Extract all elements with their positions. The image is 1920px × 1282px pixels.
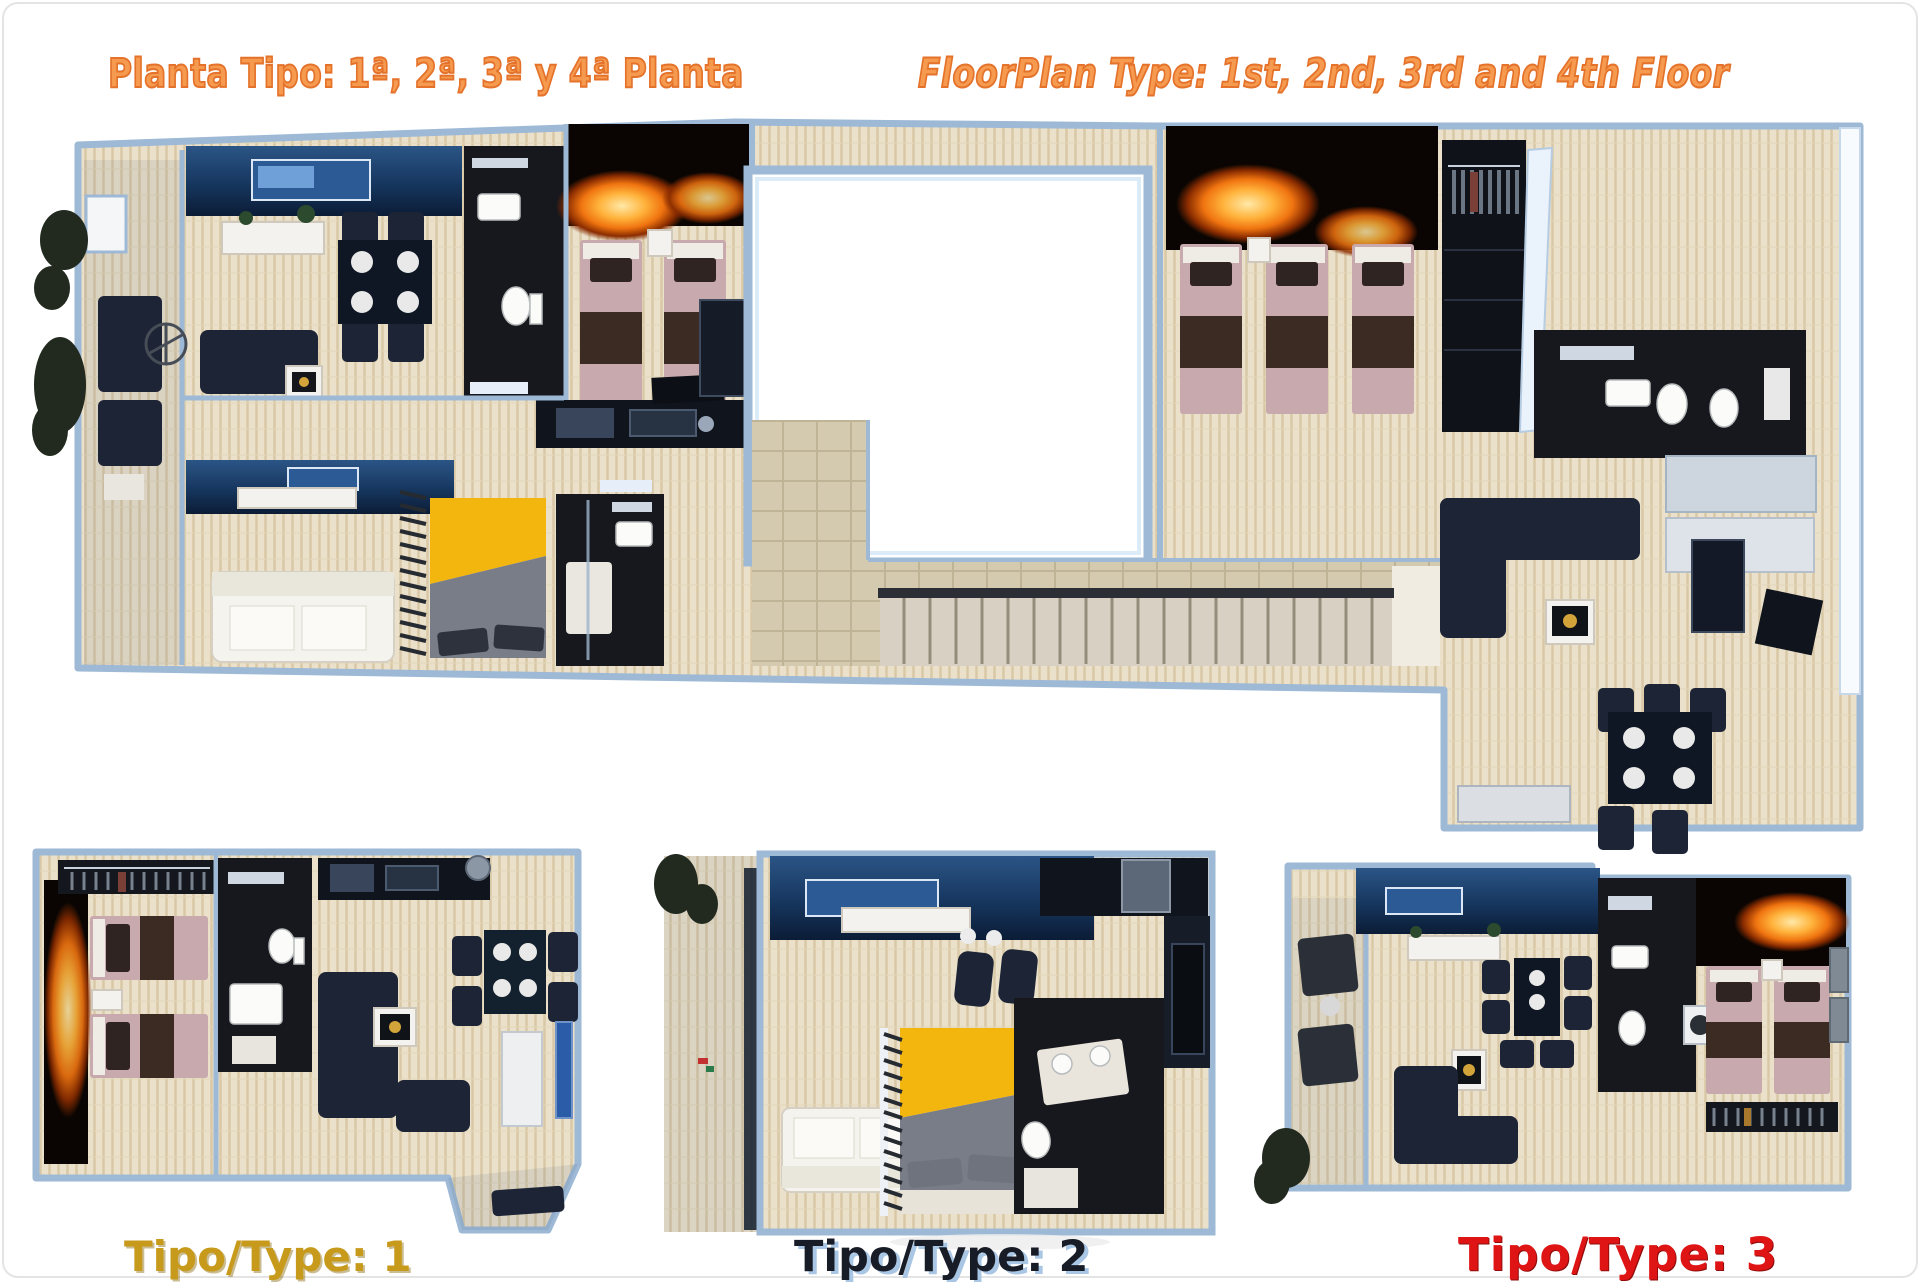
- bathroom-type-2: [1014, 998, 1164, 1214]
- fireplace-box-type-1: [374, 1008, 416, 1046]
- bathroom-type-1: [218, 858, 312, 1072]
- fridge: [700, 300, 750, 396]
- sink-right: [1606, 380, 1650, 406]
- door-gap-a: [470, 382, 528, 394]
- bathroom-a: [464, 146, 564, 396]
- media-board-type-2: [842, 908, 970, 932]
- sink-1: [230, 984, 282, 1024]
- tv-logo-type-3: [1386, 888, 1462, 914]
- stair-landing: [1392, 566, 1440, 666]
- wardrobe-type-3: [1706, 1102, 1838, 1132]
- bath-cabinet-type-2: [1024, 1168, 1078, 1208]
- nightstand: [648, 230, 672, 256]
- nightstand: [92, 990, 122, 1010]
- nightstand: [1248, 238, 1270, 262]
- tree-type-3: [1254, 1128, 1310, 1204]
- bathroom-b: [556, 480, 664, 666]
- sideboard-right: [1458, 786, 1570, 822]
- twin-bed-3b: [1774, 966, 1830, 1094]
- twin-bed-1b: [90, 1014, 208, 1078]
- floor-plan-type-1: [36, 852, 578, 1230]
- fridge-right: [1692, 540, 1744, 632]
- sink-3: [1612, 946, 1648, 968]
- mirror-right: [1560, 346, 1634, 360]
- terrace-item: [698, 1058, 708, 1064]
- mirror-1: [228, 872, 284, 884]
- sink-b: [616, 522, 652, 546]
- fire-glow-icon: [44, 902, 92, 1118]
- basin: [1052, 1054, 1072, 1074]
- tv-panel-type-2: [1172, 944, 1204, 1054]
- terrace-item: [706, 1066, 714, 1072]
- sideboard-type-3: [1408, 936, 1500, 960]
- terrace-type-2: [654, 854, 764, 1232]
- tv-logo-b: [288, 468, 358, 490]
- vent-pipe: [466, 856, 490, 880]
- terrace-table-3: [1320, 996, 1340, 1016]
- balcony-panel: [1830, 998, 1848, 1042]
- nightstand: [1762, 960, 1782, 980]
- stove-knob-a: [299, 377, 309, 387]
- floor-plan-type-2: [654, 854, 1212, 1232]
- plan-label-type-3: Tipo/Type: 3: [1458, 1230, 1778, 1280]
- terrace-sofa: [98, 296, 162, 392]
- vanity-cabinet-1: [232, 1036, 276, 1064]
- door-gap-b: [600, 480, 652, 492]
- tv-logo-a: [258, 166, 314, 188]
- sideboard-type-1: [502, 1032, 542, 1126]
- balcony-panel: [1830, 948, 1848, 992]
- wardrobe-rail-1: [58, 860, 214, 894]
- floorplan-render: [0, 0, 1920, 1280]
- terrace-table: [104, 474, 144, 500]
- twin-bed-1a: [90, 916, 208, 980]
- toilet-tank-a: [530, 294, 542, 324]
- plant: [1487, 923, 1501, 937]
- mug: [986, 930, 1002, 946]
- towel-rack: [1764, 368, 1790, 420]
- plan-label-type-1: Tipo/Type: 1: [124, 1234, 412, 1280]
- terrace-left: [32, 150, 182, 665]
- plant-a1: [239, 211, 253, 225]
- fire-glow-icon: [1734, 892, 1850, 952]
- fridge-type-2: [1122, 860, 1170, 912]
- main-floor-plan: [32, 122, 1860, 854]
- basin: [1090, 1046, 1110, 1066]
- terrace-armchair: [98, 400, 162, 466]
- toilet-1: [269, 929, 295, 963]
- lounger: [1297, 933, 1359, 997]
- twin-bed-3a: [1706, 966, 1762, 1094]
- plan-label-type-2: Tipo/Type: 2: [794, 1234, 1088, 1281]
- bathroom-right: [1534, 330, 1806, 458]
- balcony-bench: [491, 1186, 565, 1217]
- right-wall-strip: [1840, 128, 1860, 694]
- bed-yellow-b: [430, 498, 546, 658]
- toilet-a: [502, 287, 530, 325]
- sink-round: [698, 416, 714, 432]
- sink-a: [478, 194, 520, 220]
- sideboard-a: [222, 222, 324, 254]
- divider-strip-type-2: [880, 1028, 888, 1216]
- balcony-nook: [86, 196, 126, 252]
- mirror-b: [612, 502, 652, 512]
- floor-plan-type-3: [1254, 866, 1850, 1204]
- bed-type-2: [900, 1028, 1030, 1214]
- fire-glow-icon: [1176, 164, 1320, 244]
- vanity-type-2: [1037, 1038, 1130, 1105]
- toilet-right: [1657, 384, 1687, 424]
- range-unit: [1755, 589, 1823, 656]
- toilet-3: [1619, 1011, 1645, 1045]
- plant-a2: [297, 205, 315, 223]
- stool: [997, 948, 1038, 1005]
- bedroom-right: [1166, 126, 1438, 414]
- stair-handrail: [878, 588, 1394, 598]
- toilet-tank-1: [294, 938, 304, 964]
- lounger: [1297, 1023, 1359, 1087]
- stool: [953, 950, 994, 1007]
- fire-glow-icon: [662, 172, 754, 224]
- tv-board-b: [238, 488, 356, 508]
- mirror-a: [472, 158, 528, 168]
- media-box-right: [1546, 600, 1594, 644]
- mug: [960, 928, 976, 944]
- mirror-3: [1608, 896, 1652, 910]
- plant: [1410, 926, 1422, 938]
- surf-picture-type-1: [556, 1022, 572, 1118]
- bidet-right: [1710, 389, 1738, 427]
- kitchen-type-1: [318, 856, 490, 900]
- sofa-white-b: [212, 572, 394, 662]
